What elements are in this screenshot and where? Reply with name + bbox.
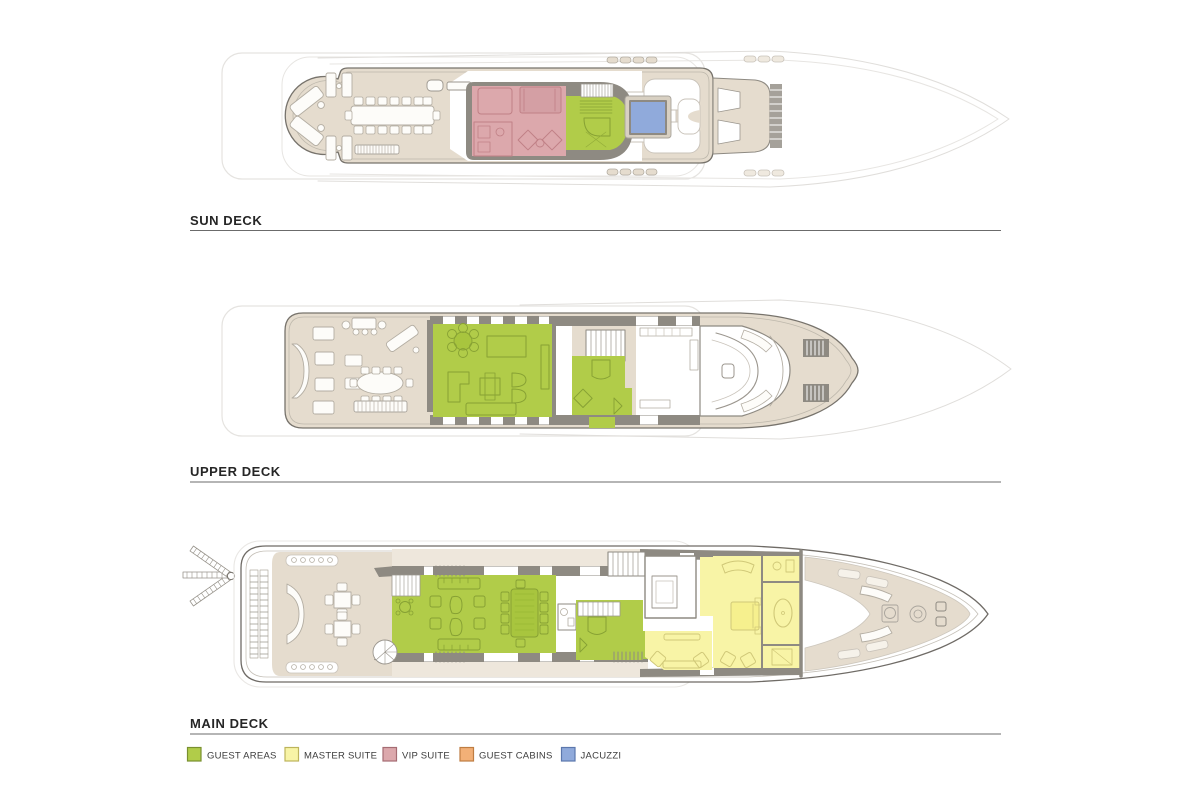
svg-text:VIP SUITE: VIP SUITE xyxy=(402,751,450,762)
svg-text:JACUZZI: JACUZZI xyxy=(581,751,622,762)
svg-text:UPPER DECK: UPPER DECK xyxy=(190,464,281,479)
svg-text:GUEST CABINS: GUEST CABINS xyxy=(479,751,553,762)
svg-text:MASTER SUITE: MASTER SUITE xyxy=(304,751,377,762)
svg-text:MAIN DECK: MAIN DECK xyxy=(190,716,269,731)
svg-text:GUEST AREAS: GUEST AREAS xyxy=(207,751,277,762)
svg-text:SUN DECK: SUN DECK xyxy=(190,213,262,228)
